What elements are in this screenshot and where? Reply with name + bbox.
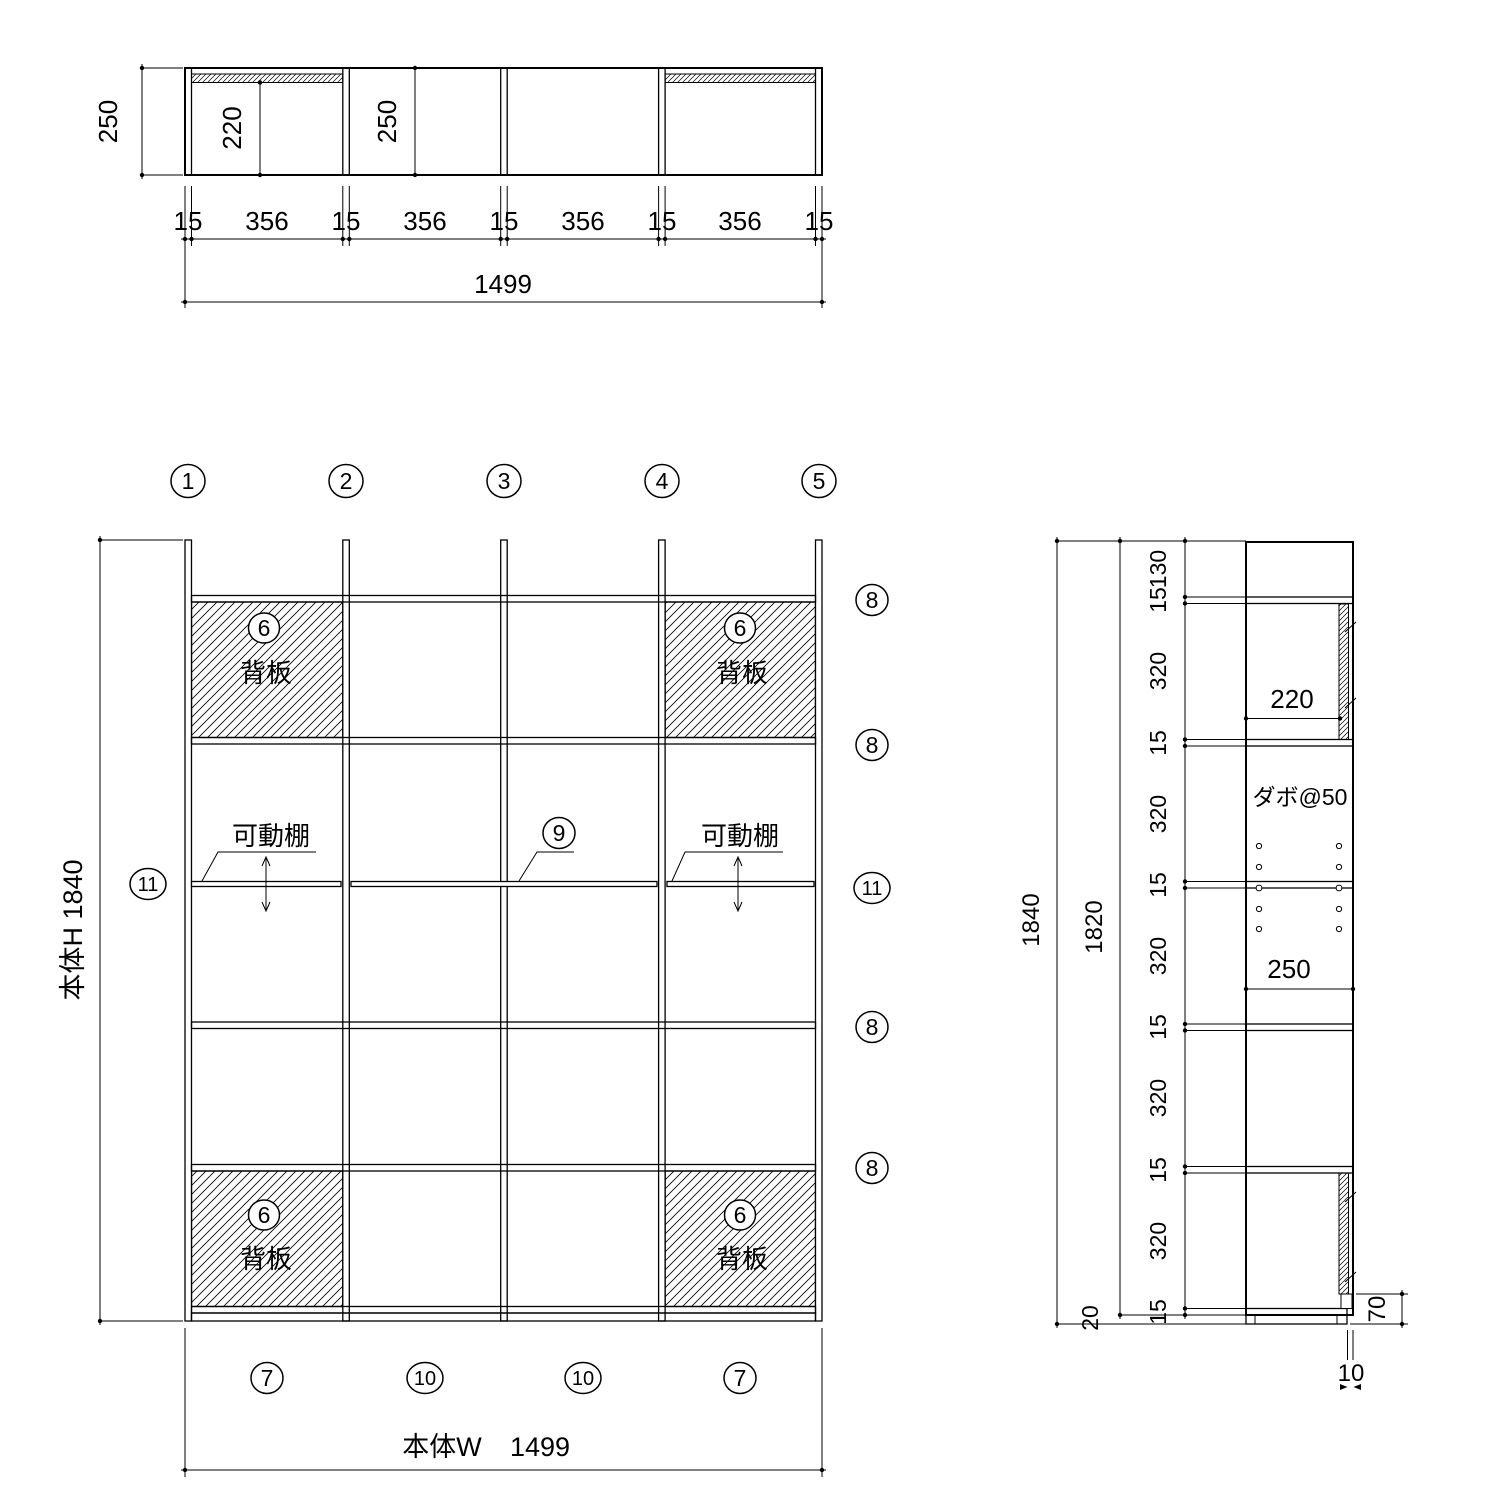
movable-label-left: 可動棚 [232,821,310,851]
plan-segment-dimline [181,237,826,241]
plan-back-panel-strip-right [665,74,815,83]
width-label: 本体W [402,1432,482,1462]
dim-15: 15 [648,206,677,236]
column-markers: 1 2 3 4 5 [171,465,836,498]
back-panel-text: 背板 [716,1244,768,1274]
side-depth-dim: 250 [1244,954,1355,991]
side-shelf-extensions [1185,597,1246,1315]
stack-15: 15 [1145,587,1171,613]
part6-marker: 6 [258,1202,271,1228]
plan-back-panel-strip-left [192,74,343,83]
side-clear-depth-label: 220 [1270,684,1313,714]
col-marker-5: 5 [813,468,826,494]
stack-15: 15 [1145,872,1171,898]
movable-label-right: 可動棚 [701,821,779,851]
back-panel-text: 背板 [240,1244,292,1274]
side-depth-label: 250 [1267,954,1310,984]
stack-320: 320 [1145,1079,1171,1117]
part6-marker: 6 [258,615,271,641]
width-value: 1499 [510,1432,570,1462]
part10-marker: 10 [414,1368,436,1390]
stack-15: 15 [1145,1299,1171,1325]
side-total-label: 1840 [1018,893,1045,946]
stack-320: 320 [1145,1222,1171,1260]
dim-356: 356 [403,206,446,236]
stack-320: 320 [1145,937,1171,975]
plan-body-outline [185,68,822,175]
side-inner-label: 1820 [1081,900,1108,953]
plan-clear-depth-dim: 220 [217,80,262,177]
row-markers-right: 8 8 11 8 8 [854,585,890,1184]
back-gap-dim: 10 [1338,1330,1365,1390]
dim-356: 356 [561,206,604,236]
plan-depth-label: 250 [93,100,123,143]
part8-marker: 8 [866,1155,879,1181]
stack-320: 320 [1145,795,1171,833]
side-base-label: 20 [1077,1305,1103,1331]
dowel-detail: ダボ@50 [1253,784,1348,932]
row-marker-left: 11 [130,869,166,900]
movable-shelf-callouts: 可動棚 可動棚 9 [202,818,783,912]
stack-15: 15 [1145,730,1171,756]
part10-marker: 10 [572,1368,594,1390]
plan-overall-dim: 1499 [181,246,826,308]
toe-kick-label: 70 [1364,1296,1391,1323]
part8-marker: 8 [866,1014,879,1040]
plan-clear-depth-label: 220 [217,106,247,149]
back-panel-text: 背板 [716,658,768,688]
shelf-technical-drawing: 250 220 250 15 356 15 356 15 356 15 356 [0,0,1500,1500]
height-label: 本体H 1840 [58,859,88,1000]
col-marker-2: 2 [340,468,353,494]
stack-320: 320 [1145,652,1171,690]
plan-overall-label: 1499 [474,269,532,299]
part6-marker: 6 [734,1202,747,1228]
side-total-dim: 1840 [1018,537,1246,1328]
bottom-markers: 7 10 10 7 [251,1363,756,1394]
top-view: 250 220 250 15 356 15 356 15 356 15 356 [93,64,833,308]
plan-depth-dim: 250 [93,64,183,179]
movable-shelves [192,882,815,887]
part6-marker: 6 [734,615,747,641]
dim-15: 15 [174,206,203,236]
width-dim: 本体W 1499 [181,1328,826,1477]
part8-marker: 8 [866,587,879,613]
dim-356: 356 [245,206,288,236]
plan-depth2-dim: 250 [372,66,417,177]
dim-15: 15 [490,206,519,236]
side-view: 220 ダボ@50 250 1840 1820 20 [1018,537,1408,1390]
dim-356: 356 [718,206,761,236]
part11-marker: 11 [862,878,883,900]
part11-marker: 11 [138,874,159,896]
stack-15: 15 [1145,1014,1171,1040]
back-gap-label: 10 [1338,1360,1365,1387]
side-base [1246,1315,1347,1324]
part7-marker: 7 [734,1365,747,1391]
col-marker-1: 1 [182,468,195,494]
side-stack-labels: 130 15 320 15 320 15 320 15 320 15 320 1… [1145,550,1171,1325]
front-view: 1 2 3 4 5 6 [58,465,890,1478]
side-clear-depth-dim: 220 [1244,684,1342,721]
col-marker-4: 4 [656,468,669,494]
part9-marker: 9 [553,820,566,846]
dim-15: 15 [332,206,361,236]
side-stack-dimline [1183,537,1246,1319]
part7-marker: 7 [261,1365,274,1391]
col-marker-3: 3 [498,468,511,494]
plan-depth2-label: 250 [372,100,402,143]
stack-15: 15 [1145,1157,1171,1183]
dim-15: 15 [805,206,834,236]
toe-kick-dim: 70 [1350,1290,1408,1328]
height-dim: 本体H 1840 [58,536,183,1325]
back-panel-text: 背板 [240,658,292,688]
stack-130: 130 [1145,550,1171,588]
part8-marker: 8 [866,732,879,758]
dowel-label: ダボ@50 [1253,784,1348,810]
drawing-canvas: 250 220 250 15 356 15 356 15 356 15 356 [0,0,1500,1500]
plan-segment-dims: 15 356 15 356 15 356 15 356 15 [174,206,834,236]
